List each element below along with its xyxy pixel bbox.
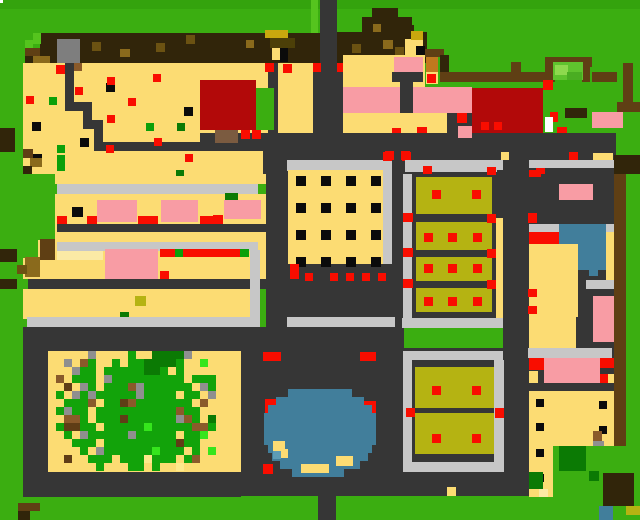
garden-vegetation <box>80 367 88 375</box>
bed[interactable] <box>224 200 261 219</box>
garden-vegetation <box>152 359 160 367</box>
map-tile <box>626 506 640 515</box>
garden-vegetation <box>104 423 112 431</box>
garden-vegetation <box>152 463 160 471</box>
map-tile <box>23 166 32 174</box>
map-tile <box>154 138 162 146</box>
tree-trunk <box>426 57 438 72</box>
map-tile <box>135 296 146 306</box>
garden-vegetation <box>120 375 128 383</box>
map-tile <box>481 122 489 130</box>
map-tile <box>225 193 238 200</box>
garden-vegetation <box>112 431 120 439</box>
garden-vegetation <box>128 367 136 375</box>
garden-vegetation <box>176 351 184 359</box>
map-tile <box>448 233 457 242</box>
garden-vegetation <box>168 439 176 447</box>
map-tile <box>529 371 538 383</box>
garden-vegetation <box>152 383 160 391</box>
doorway[interactable] <box>280 48 288 62</box>
garden-vegetation <box>184 407 192 415</box>
map-tile <box>321 257 331 267</box>
garden-vegetation <box>208 391 216 399</box>
map-tile <box>250 250 260 327</box>
garden-vegetation <box>80 383 88 391</box>
garden-vegetation <box>128 391 136 399</box>
garden-vegetation <box>112 407 120 415</box>
garden-vegetation <box>112 359 120 367</box>
garden-vegetation <box>136 391 144 399</box>
garden-vegetation <box>152 447 160 455</box>
garden-vegetation <box>208 415 216 423</box>
garden-vegetation <box>112 391 120 399</box>
road-central <box>503 174 529 496</box>
garden-vegetation <box>184 391 192 399</box>
map-tile <box>529 170 541 177</box>
map-tile <box>403 248 413 257</box>
garden-vegetation <box>112 447 120 455</box>
garden-vegetation <box>88 383 96 391</box>
garden-vegetation <box>80 431 88 439</box>
garden-vegetation <box>192 447 200 455</box>
garden-vegetation <box>136 367 144 375</box>
map-tile <box>432 190 441 199</box>
map-tile <box>270 38 295 48</box>
garden-vegetation <box>144 391 152 399</box>
garden-vegetation <box>64 383 72 391</box>
map-tile <box>57 163 65 171</box>
map-tile <box>49 97 57 105</box>
map-tile <box>272 48 280 60</box>
map-tile <box>200 216 213 224</box>
garden-vegetation <box>168 455 176 463</box>
garden-vegetation <box>112 383 120 391</box>
map-tile <box>569 152 578 160</box>
garden-vegetation <box>128 439 136 447</box>
map-tile <box>432 434 441 443</box>
pond-water[interactable] <box>288 389 352 397</box>
garden-vegetation <box>152 407 160 415</box>
garden-vegetation <box>72 375 80 383</box>
garden-vegetation <box>168 423 176 431</box>
garden-vegetation <box>168 359 176 367</box>
map-tile <box>160 249 240 257</box>
map-tile <box>424 264 433 273</box>
garden-vegetation <box>136 423 144 431</box>
garden-vegetation <box>64 359 72 367</box>
log <box>565 108 587 118</box>
map-tile <box>176 170 184 176</box>
garden-vegetation <box>160 367 168 375</box>
map-tile <box>57 155 65 163</box>
map-tile <box>424 297 433 306</box>
map-tile <box>311 0 318 34</box>
machine[interactable] <box>57 39 80 63</box>
bed[interactable] <box>97 200 137 222</box>
map-tile <box>473 264 482 273</box>
map-tile <box>529 317 576 348</box>
map-tile <box>458 126 472 138</box>
garden-vegetation <box>96 455 104 463</box>
garden-vegetation <box>184 383 192 391</box>
garden-vegetation <box>120 383 128 391</box>
garden-vegetation <box>200 431 208 439</box>
garden-vegetation <box>144 423 152 431</box>
garden-vegetation <box>128 463 136 471</box>
garden-vegetation <box>136 407 144 415</box>
garden-vegetation <box>96 407 104 415</box>
garden-vegetation <box>120 455 128 463</box>
map-tile <box>106 145 114 153</box>
map-tile <box>383 152 392 161</box>
map-tile <box>156 43 165 52</box>
map-tile <box>472 190 481 199</box>
garden-vegetation <box>168 407 176 415</box>
map-tile <box>529 472 543 489</box>
garden-vegetation <box>176 423 184 431</box>
map-tile <box>184 107 193 116</box>
garden-vegetation <box>136 447 144 455</box>
garden-vegetation <box>168 375 176 383</box>
map-tile <box>120 49 130 57</box>
garden-vegetation <box>136 439 144 447</box>
garden-vegetation <box>144 455 152 463</box>
tree <box>603 473 634 506</box>
garden-vegetation <box>120 367 128 375</box>
garden-vegetation <box>112 399 120 407</box>
bed[interactable] <box>161 200 198 222</box>
garden-vegetation <box>104 415 112 423</box>
garden-vegetation <box>88 399 96 407</box>
garden-vegetation <box>152 423 160 431</box>
door[interactable] <box>215 130 238 143</box>
map-tile <box>321 203 331 213</box>
map-tile <box>23 174 55 240</box>
map-tile <box>592 72 617 82</box>
garden-vegetation <box>192 415 200 423</box>
map-tile <box>406 408 415 417</box>
map-tile <box>175 249 183 257</box>
map-tile <box>80 138 89 147</box>
garden-vegetation <box>160 439 168 447</box>
map-tile <box>186 35 195 44</box>
map-tile <box>528 348 612 358</box>
garden-vegetation <box>160 447 168 455</box>
bed[interactable] <box>593 296 614 342</box>
map-tile <box>529 160 619 168</box>
map-tile <box>501 152 509 160</box>
garden-vegetation <box>144 359 152 367</box>
map-tile <box>107 115 115 123</box>
map-tile <box>40 239 55 260</box>
map-tile <box>405 160 497 172</box>
map-tile <box>138 216 158 224</box>
pond-water[interactable] <box>264 421 376 429</box>
bed[interactable] <box>394 57 423 72</box>
east-wall <box>614 174 626 446</box>
garden-vegetation <box>104 399 112 407</box>
garden-vegetation <box>168 415 176 423</box>
garden-vegetation <box>96 431 104 439</box>
garden-vegetation <box>160 351 168 359</box>
garden-vegetation <box>160 399 168 407</box>
gold-block[interactable] <box>265 30 288 38</box>
garden-vegetation <box>88 367 96 375</box>
garden-vegetation <box>144 415 152 423</box>
garden-vegetation <box>88 423 96 431</box>
garden-vegetation <box>136 375 144 383</box>
garden-vegetation <box>120 447 128 455</box>
garden-vegetation <box>88 439 96 447</box>
map-tile <box>599 506 613 520</box>
map-tile <box>346 257 356 267</box>
bunk[interactable] <box>415 413 494 454</box>
map-tile <box>448 264 457 273</box>
map-tile <box>246 40 254 48</box>
garden-vegetation <box>152 375 160 383</box>
map-tile <box>321 230 331 240</box>
garden-vegetation <box>184 455 192 463</box>
map-tile <box>160 271 169 279</box>
garden-vegetation <box>80 439 88 447</box>
map-tile <box>371 203 381 213</box>
garden-vegetation <box>104 439 112 447</box>
map-tile <box>511 62 521 72</box>
garden-vegetation <box>120 415 128 423</box>
garden-vegetation <box>80 391 88 399</box>
map-tile <box>346 176 356 186</box>
garden-vegetation <box>144 407 152 415</box>
garden-vegetation <box>128 431 136 439</box>
garden-vegetation <box>184 423 192 431</box>
garden-vegetation <box>152 399 160 407</box>
map-tile <box>536 399 544 407</box>
garden-vegetation <box>136 399 144 407</box>
garden-vegetation <box>176 375 184 383</box>
garden-vegetation <box>160 375 168 383</box>
garden-vegetation <box>128 407 136 415</box>
garden-vegetation <box>176 367 184 375</box>
map-tile <box>23 240 38 258</box>
garden-vegetation <box>152 431 160 439</box>
map-tile <box>403 351 503 360</box>
map-tile <box>593 153 613 160</box>
map-tile <box>33 33 41 44</box>
garden-vegetation <box>128 359 136 367</box>
map-tile <box>600 358 614 368</box>
garden-vegetation <box>120 407 128 415</box>
garden-vegetation <box>104 407 112 415</box>
garden-vegetation <box>56 423 64 431</box>
map-tile <box>487 167 496 175</box>
garden-vegetation <box>136 359 144 367</box>
garden-vegetation <box>168 399 176 407</box>
garden-vegetation <box>120 431 128 439</box>
garden-vegetation <box>72 407 80 415</box>
garden-vegetation <box>176 415 184 423</box>
map-tile <box>536 449 544 457</box>
garden-vegetation <box>160 383 168 391</box>
map-tile <box>87 216 97 224</box>
garden-vegetation <box>128 375 136 383</box>
map-tile <box>559 446 586 471</box>
map-tile <box>362 273 370 281</box>
map-tile <box>25 257 40 277</box>
map-tile <box>72 207 83 217</box>
garden-vegetation <box>176 439 184 447</box>
map-tile <box>371 230 381 240</box>
garden-vegetation <box>136 383 144 391</box>
garden-vegetation <box>168 447 176 455</box>
garden-vegetation <box>88 375 96 383</box>
garden-vegetation <box>152 439 160 447</box>
map-tile <box>529 232 559 244</box>
garden-vegetation <box>144 375 152 383</box>
garden-vegetation <box>136 455 144 463</box>
bunk[interactable] <box>415 367 494 408</box>
map-tile <box>263 352 281 361</box>
map-tile <box>424 233 433 242</box>
garden-vegetation <box>152 391 160 399</box>
gold-block[interactable] <box>411 31 423 40</box>
white-tile[interactable] <box>545 117 553 132</box>
garden-vegetation <box>72 439 80 447</box>
map-tile <box>589 471 599 481</box>
garden-vegetation <box>176 447 184 455</box>
map-tile <box>313 63 321 72</box>
garden-vegetation <box>80 399 88 407</box>
garden-vegetation <box>200 423 208 431</box>
pond-water[interactable] <box>264 413 376 421</box>
map-tile <box>28 279 266 289</box>
road-south <box>318 496 336 520</box>
map-tile <box>432 386 441 395</box>
garden-vegetation <box>120 439 128 447</box>
garden-vegetation <box>112 439 120 447</box>
garden-vegetation <box>192 423 200 431</box>
garden-vegetation <box>104 367 112 375</box>
garden-vegetation <box>200 375 208 383</box>
garden-vegetation <box>168 431 176 439</box>
garden-vegetation <box>160 423 168 431</box>
map-tile <box>296 230 306 240</box>
red-building-west[interactable] <box>200 80 256 130</box>
garden-vegetation <box>160 455 168 463</box>
pond-water[interactable] <box>268 405 372 413</box>
garden-vegetation <box>64 399 72 407</box>
map-tile <box>107 77 115 85</box>
garden-vegetation <box>192 431 200 439</box>
garden-vegetation <box>176 383 184 391</box>
map-tile <box>185 154 193 162</box>
map-tile <box>472 386 481 395</box>
map-tile <box>447 487 456 496</box>
map-tile <box>0 249 17 262</box>
garden-vegetation <box>104 447 112 455</box>
garden-vegetation <box>96 447 104 455</box>
garden-vegetation <box>128 351 136 359</box>
map-tile <box>403 462 504 472</box>
map-tile <box>589 268 598 276</box>
map-tile <box>528 213 537 223</box>
bed[interactable] <box>559 184 593 200</box>
road-north <box>320 0 337 63</box>
pond-water[interactable] <box>264 429 376 437</box>
map-tile <box>457 113 467 123</box>
garden-vegetation <box>120 391 128 399</box>
bed-large[interactable] <box>105 249 158 279</box>
map-tile <box>372 8 398 18</box>
map-tile <box>599 401 607 409</box>
garden-vegetation <box>160 415 168 423</box>
wall-block <box>614 155 640 174</box>
garden-vegetation <box>208 375 216 383</box>
garden-vegetation <box>128 383 136 391</box>
game-map[interactable] <box>0 0 640 520</box>
garden-vegetation <box>176 399 184 407</box>
garden-vegetation <box>88 455 96 463</box>
map-tile <box>287 317 395 327</box>
garden-vegetation <box>104 383 112 391</box>
garden-vegetation <box>80 375 88 383</box>
garden-vegetation <box>144 447 152 455</box>
garden-vegetation <box>64 431 72 439</box>
garden-vegetation <box>144 399 152 407</box>
map-tile <box>617 102 640 112</box>
garden-vegetation <box>160 431 168 439</box>
garden-vegetation <box>200 399 208 407</box>
map-tile <box>17 265 27 274</box>
garden-vegetation <box>72 415 80 423</box>
garden-vegetation <box>208 423 216 431</box>
map-tile <box>56 65 65 74</box>
garden-vegetation <box>104 375 112 383</box>
garden-vegetation <box>120 399 128 407</box>
garden-vegetation <box>168 351 176 359</box>
map-tile <box>352 44 361 53</box>
bed-wide[interactable] <box>544 358 600 383</box>
garden-vegetation <box>152 415 160 423</box>
map-tile <box>0 0 3 3</box>
map-tile <box>472 434 481 443</box>
map-tile <box>57 216 67 224</box>
map-tile <box>313 63 343 138</box>
map-tile <box>241 130 250 139</box>
garden-vegetation <box>192 439 200 447</box>
map-tile <box>473 233 482 242</box>
garden-vegetation <box>64 423 72 431</box>
map-tile <box>240 249 249 257</box>
map-tile <box>26 96 34 104</box>
garden-vegetation <box>88 359 96 367</box>
garden-vegetation <box>64 407 72 415</box>
pond-water[interactable] <box>276 397 364 405</box>
garden-vegetation <box>144 367 152 375</box>
map-tile <box>423 166 432 174</box>
garden-vegetation <box>112 423 120 431</box>
bed[interactable] <box>592 112 623 128</box>
garden-vegetation <box>176 407 184 415</box>
garden-vegetation <box>152 455 160 463</box>
map-tile <box>128 98 136 106</box>
map-tile <box>256 88 274 130</box>
map-tile <box>321 176 331 186</box>
garden-vegetation <box>80 407 88 415</box>
map-tile <box>74 63 82 71</box>
map-tile <box>403 279 413 288</box>
garden-vegetation <box>56 391 64 399</box>
garden-vegetation <box>152 367 160 375</box>
